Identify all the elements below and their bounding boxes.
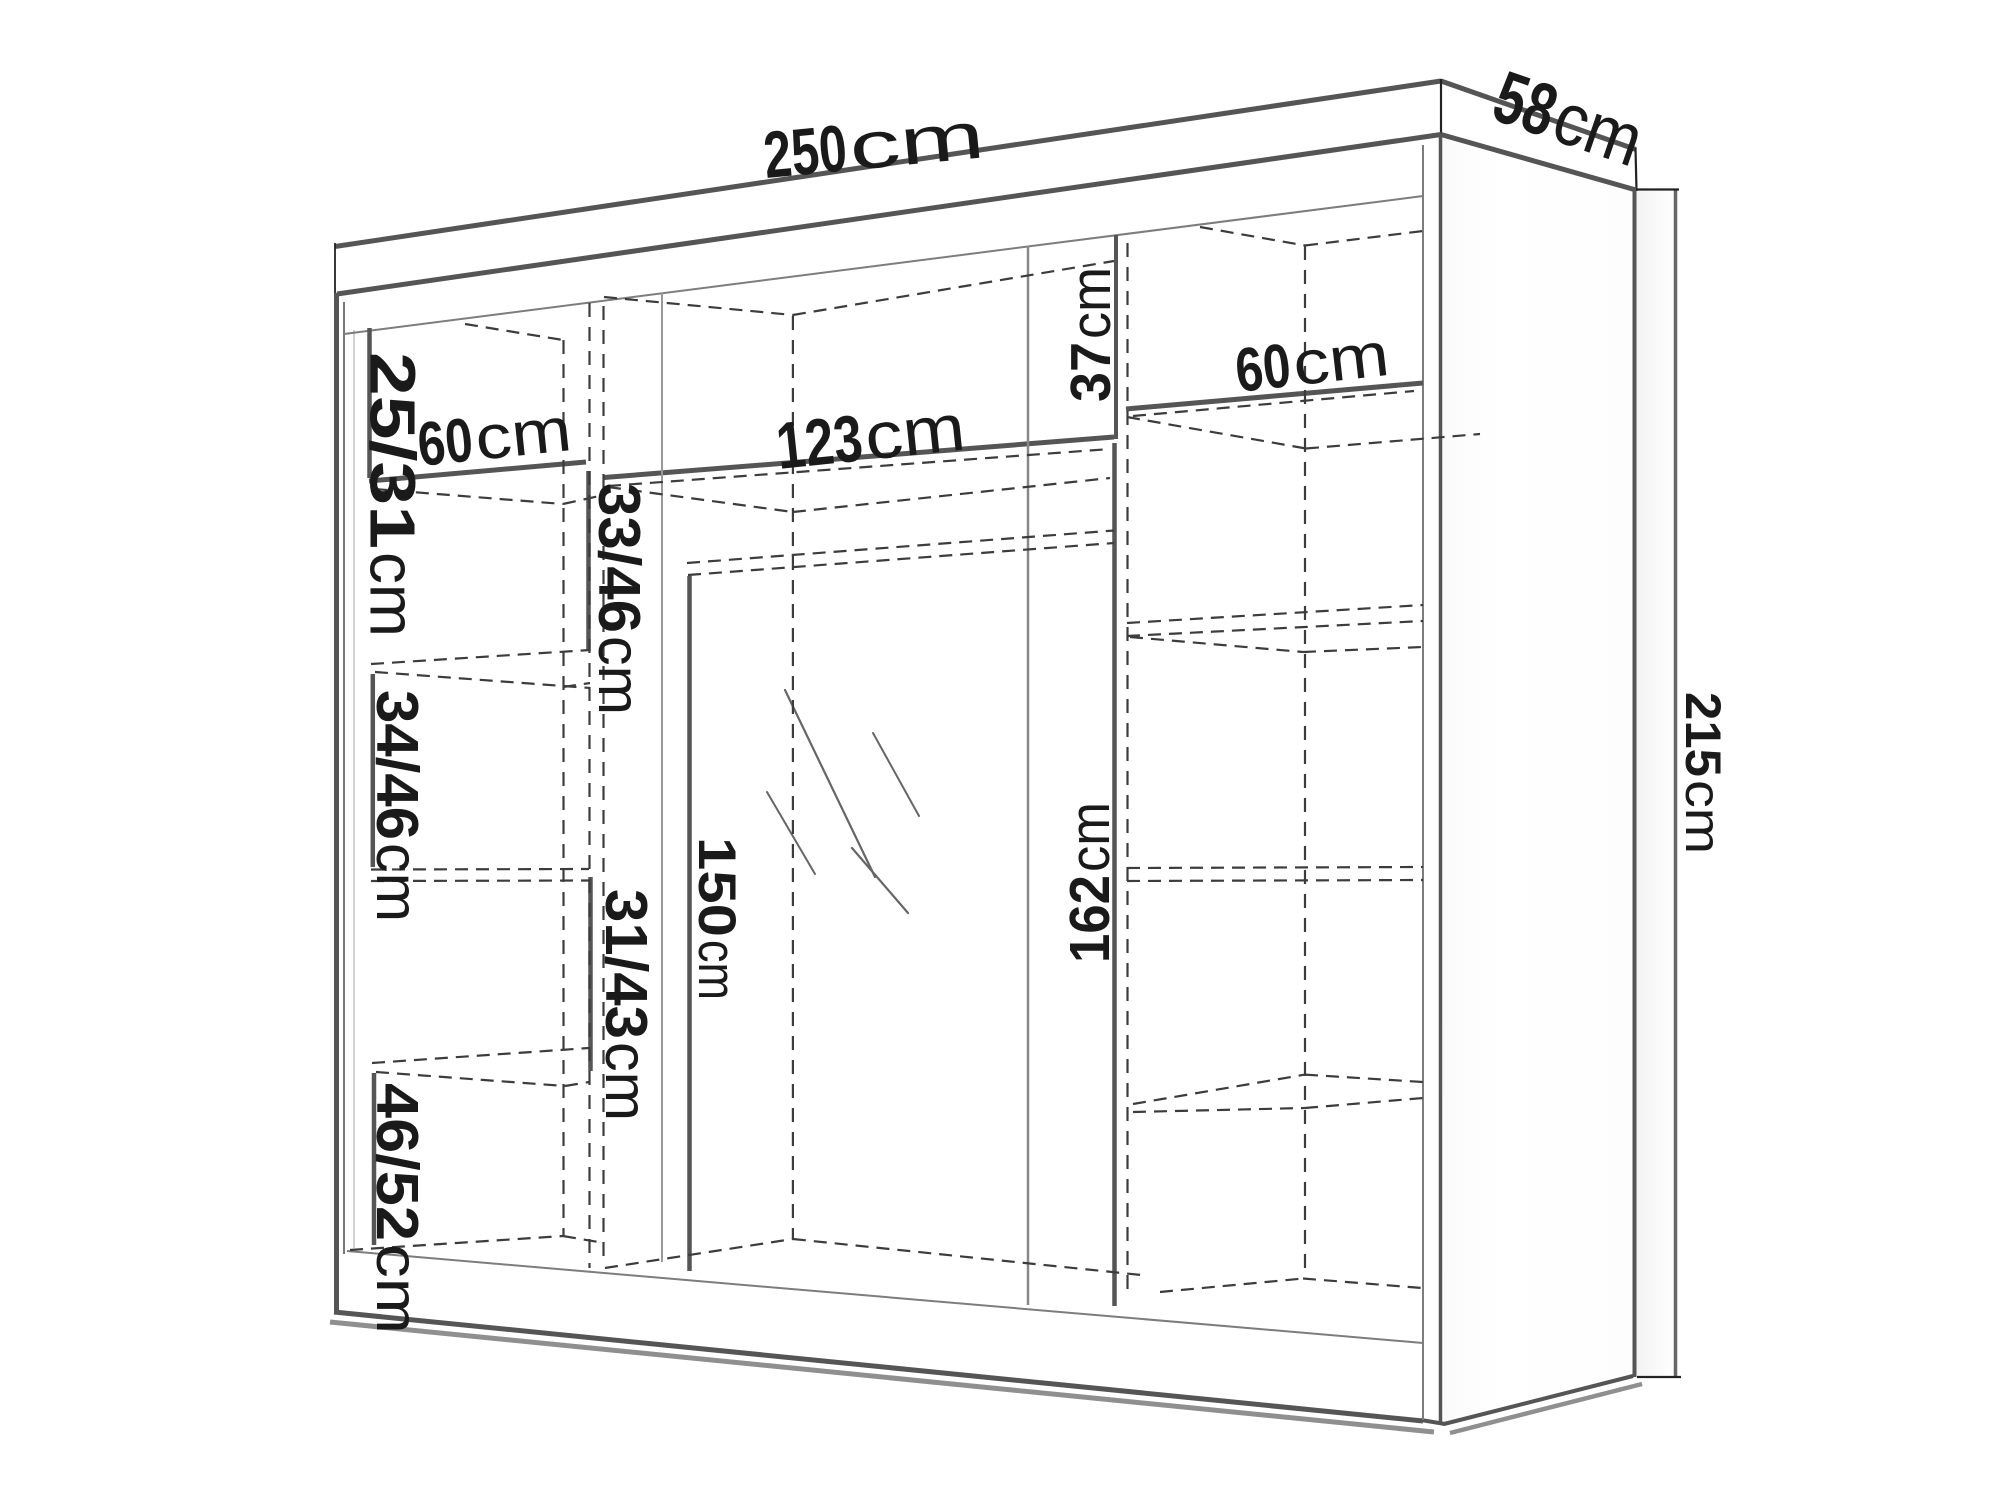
- svg-text:cm: cm: [357, 552, 429, 637]
- svg-text:162: 162: [1058, 875, 1122, 963]
- svg-text:37: 37: [1059, 342, 1123, 402]
- svg-text:123: 123: [773, 400, 866, 483]
- svg-text:cm: cm: [1058, 802, 1122, 872]
- svg-text:cm: cm: [364, 843, 430, 922]
- svg-text:215: 215: [1675, 692, 1731, 777]
- svg-text:cm: cm: [1059, 267, 1123, 339]
- svg-text:250: 250: [760, 110, 850, 191]
- svg-text:cm: cm: [846, 97, 987, 183]
- svg-text:34/46: 34/46: [364, 690, 430, 840]
- svg-text:cm: cm: [364, 1244, 430, 1334]
- svg-text:cm: cm: [1289, 320, 1392, 399]
- svg-text:cm: cm: [1675, 780, 1731, 854]
- svg-text:46/52: 46/52: [364, 1083, 430, 1241]
- svg-text:cm: cm: [472, 395, 575, 474]
- svg-text:cm: cm: [593, 1042, 659, 1121]
- svg-text:33/46: 33/46: [586, 483, 652, 633]
- svg-text:60: 60: [1232, 331, 1294, 406]
- svg-text:cm: cm: [861, 390, 968, 474]
- svg-text:150: 150: [687, 837, 746, 937]
- svg-text:25/31: 25/31: [357, 352, 429, 549]
- svg-text:cm: cm: [586, 636, 652, 715]
- svg-text:31/43: 31/43: [593, 889, 659, 1039]
- svg-text:cm: cm: [687, 940, 746, 1000]
